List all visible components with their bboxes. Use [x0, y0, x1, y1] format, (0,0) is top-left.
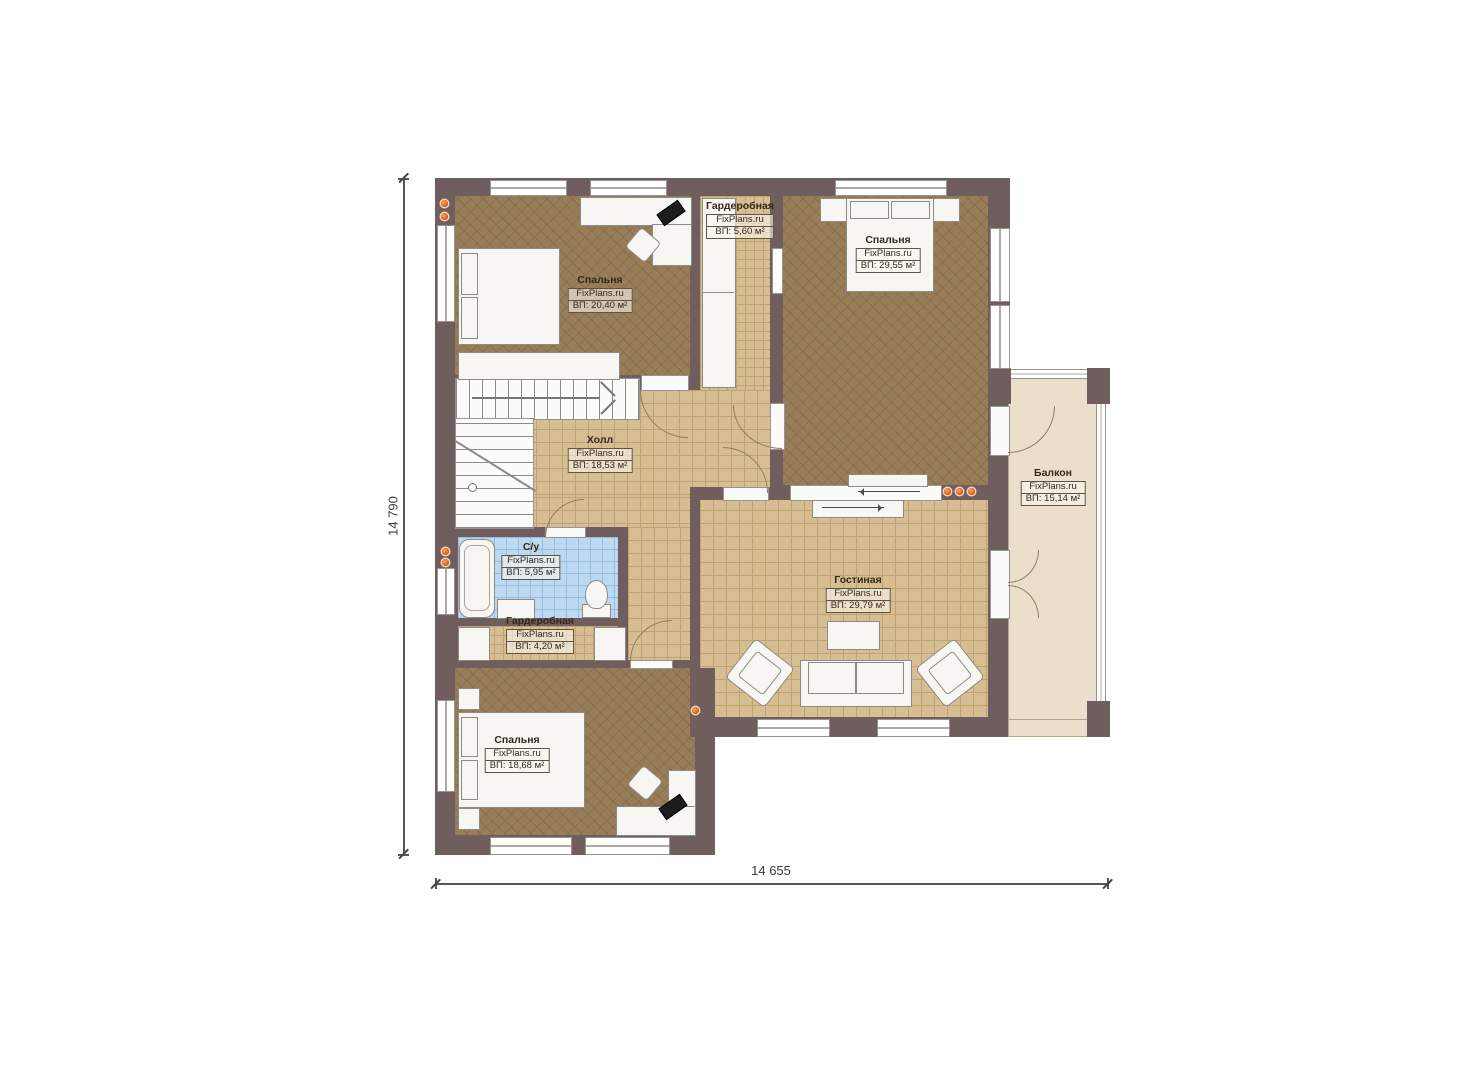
door-leaf	[990, 550, 1010, 619]
sofa-cushion	[808, 662, 856, 694]
room-area: ВП: 18,68 м²	[485, 760, 550, 773]
room-area: ВП: 15,14 м²	[1021, 493, 1086, 506]
pillow	[850, 201, 889, 219]
bathtub-inner	[464, 545, 490, 611]
window	[437, 568, 455, 615]
room-name: Гардеробная	[706, 200, 774, 212]
dimension-line-vertical	[403, 178, 405, 855]
door-leaf	[990, 406, 1010, 456]
wall	[435, 660, 630, 668]
nightstand	[820, 198, 848, 222]
room-name: Спальня	[568, 274, 633, 286]
sliding-door-leaf	[772, 248, 783, 294]
floor-plan-canvas: Спальня FixPlans.ru ВП: 20,40 м² Гардеро…	[0, 0, 1474, 1080]
window	[490, 837, 572, 855]
room-name: Гостиная	[826, 574, 891, 586]
balcony-bottom-slab	[1008, 719, 1098, 737]
ceiling-light-dot	[442, 548, 449, 555]
balcony-pillar	[988, 368, 1011, 404]
room-name: Балкон	[1021, 467, 1086, 479]
ceiling-light-dot	[441, 200, 448, 207]
pillow	[461, 760, 478, 800]
window	[437, 700, 455, 792]
window	[585, 837, 670, 855]
room-area: ВП: 5,60 м²	[706, 226, 774, 239]
window	[490, 180, 567, 196]
wall	[584, 527, 628, 537]
tv-console	[812, 500, 904, 518]
window	[990, 305, 1010, 369]
dimension-label-height: 14 790	[386, 496, 401, 536]
door-leaf	[641, 375, 689, 391]
room-name: Спальня	[856, 234, 921, 246]
ceiling-light-dot	[956, 488, 963, 495]
console-arrow	[822, 507, 884, 508]
room-label-bathroom: С/у FixPlans.ru ВП: 5,95 м²	[501, 541, 560, 580]
room-area: ВП: 29,55 м²	[856, 260, 921, 273]
window	[437, 225, 455, 322]
room-area: ВП: 20,40 м²	[568, 300, 633, 313]
window	[877, 719, 950, 737]
toilet-bowl	[585, 580, 608, 609]
room-area: ВП: 29,79 м²	[826, 600, 891, 613]
stairs-upper-flight	[455, 378, 640, 420]
room-name: Холл	[568, 434, 633, 446]
nightstand	[458, 808, 480, 830]
closet-divider	[702, 292, 734, 293]
room-name: Спальня	[485, 734, 550, 746]
pillow	[461, 297, 478, 339]
stairs-lower-flight	[455, 418, 534, 529]
ceiling-light-dot	[692, 707, 699, 714]
room-label-bedroom-top-right: Спальня FixPlans.ru ВП: 29,55 м²	[856, 234, 921, 273]
balcony-right-railing	[1096, 376, 1106, 721]
room-label-living-room: Гостиная FixPlans.ru ВП: 29,79 м²	[826, 574, 891, 613]
stairs-direction-line	[472, 397, 600, 399]
window	[590, 180, 667, 196]
balcony-pillar	[1087, 701, 1110, 737]
pillow	[461, 717, 478, 757]
window	[835, 180, 947, 196]
dimension-label-width: 14 655	[751, 863, 791, 878]
wall	[690, 487, 723, 500]
room-area: ВП: 5,95 м²	[501, 567, 560, 580]
balcony-pillar	[1087, 368, 1110, 404]
closet	[458, 352, 620, 380]
room-label-wardrobe-mid: Гардеробная FixPlans.ru ВП: 4,20 м²	[506, 615, 574, 654]
coffee-table	[827, 621, 880, 650]
room-label-hall: Холл FixPlans.ru ВП: 18,53 м²	[568, 434, 633, 473]
window	[757, 719, 830, 737]
wall	[767, 487, 790, 500]
sofa-cushion	[856, 662, 904, 694]
nightstand	[932, 198, 960, 222]
room-label-balcony: Балкон FixPlans.ru ВП: 15,14 м²	[1021, 467, 1086, 506]
closet	[458, 627, 490, 661]
ceiling-light-dot	[968, 488, 975, 495]
room-label-wardrobe-top: Гардеробная FixPlans.ru ВП: 5,60 м²	[706, 200, 774, 239]
window	[990, 228, 1010, 302]
balcony-top-railing	[1010, 369, 1090, 379]
room-label-bedroom-bottom: Спальня FixPlans.ru ВП: 18,68 м²	[485, 734, 550, 773]
wall	[695, 668, 715, 837]
room-label-bedroom-top-left: Спальня FixPlans.ru ВП: 20,40 м²	[568, 274, 633, 313]
closet	[594, 627, 626, 661]
room-area: ВП: 18,53 м²	[568, 460, 633, 473]
room-area: ВП: 4,20 м²	[506, 641, 574, 654]
ceiling-light-dot	[442, 559, 449, 566]
wall	[671, 660, 700, 668]
ceiling-light-dot	[944, 488, 951, 495]
stairs-start-circle	[468, 483, 477, 492]
desk	[616, 806, 696, 836]
dimension-line-horizontal	[435, 883, 1108, 885]
sliding-door-arrow	[858, 491, 920, 492]
door-leaf	[630, 660, 673, 669]
dresser	[848, 474, 928, 487]
ceiling-light-dot	[441, 213, 448, 220]
pillow	[891, 201, 930, 219]
pillow	[461, 253, 478, 295]
sliding-door	[790, 485, 942, 501]
nightstand	[458, 688, 480, 710]
room-name: Гардеробная	[506, 615, 574, 627]
room-name: С/у	[501, 541, 560, 553]
